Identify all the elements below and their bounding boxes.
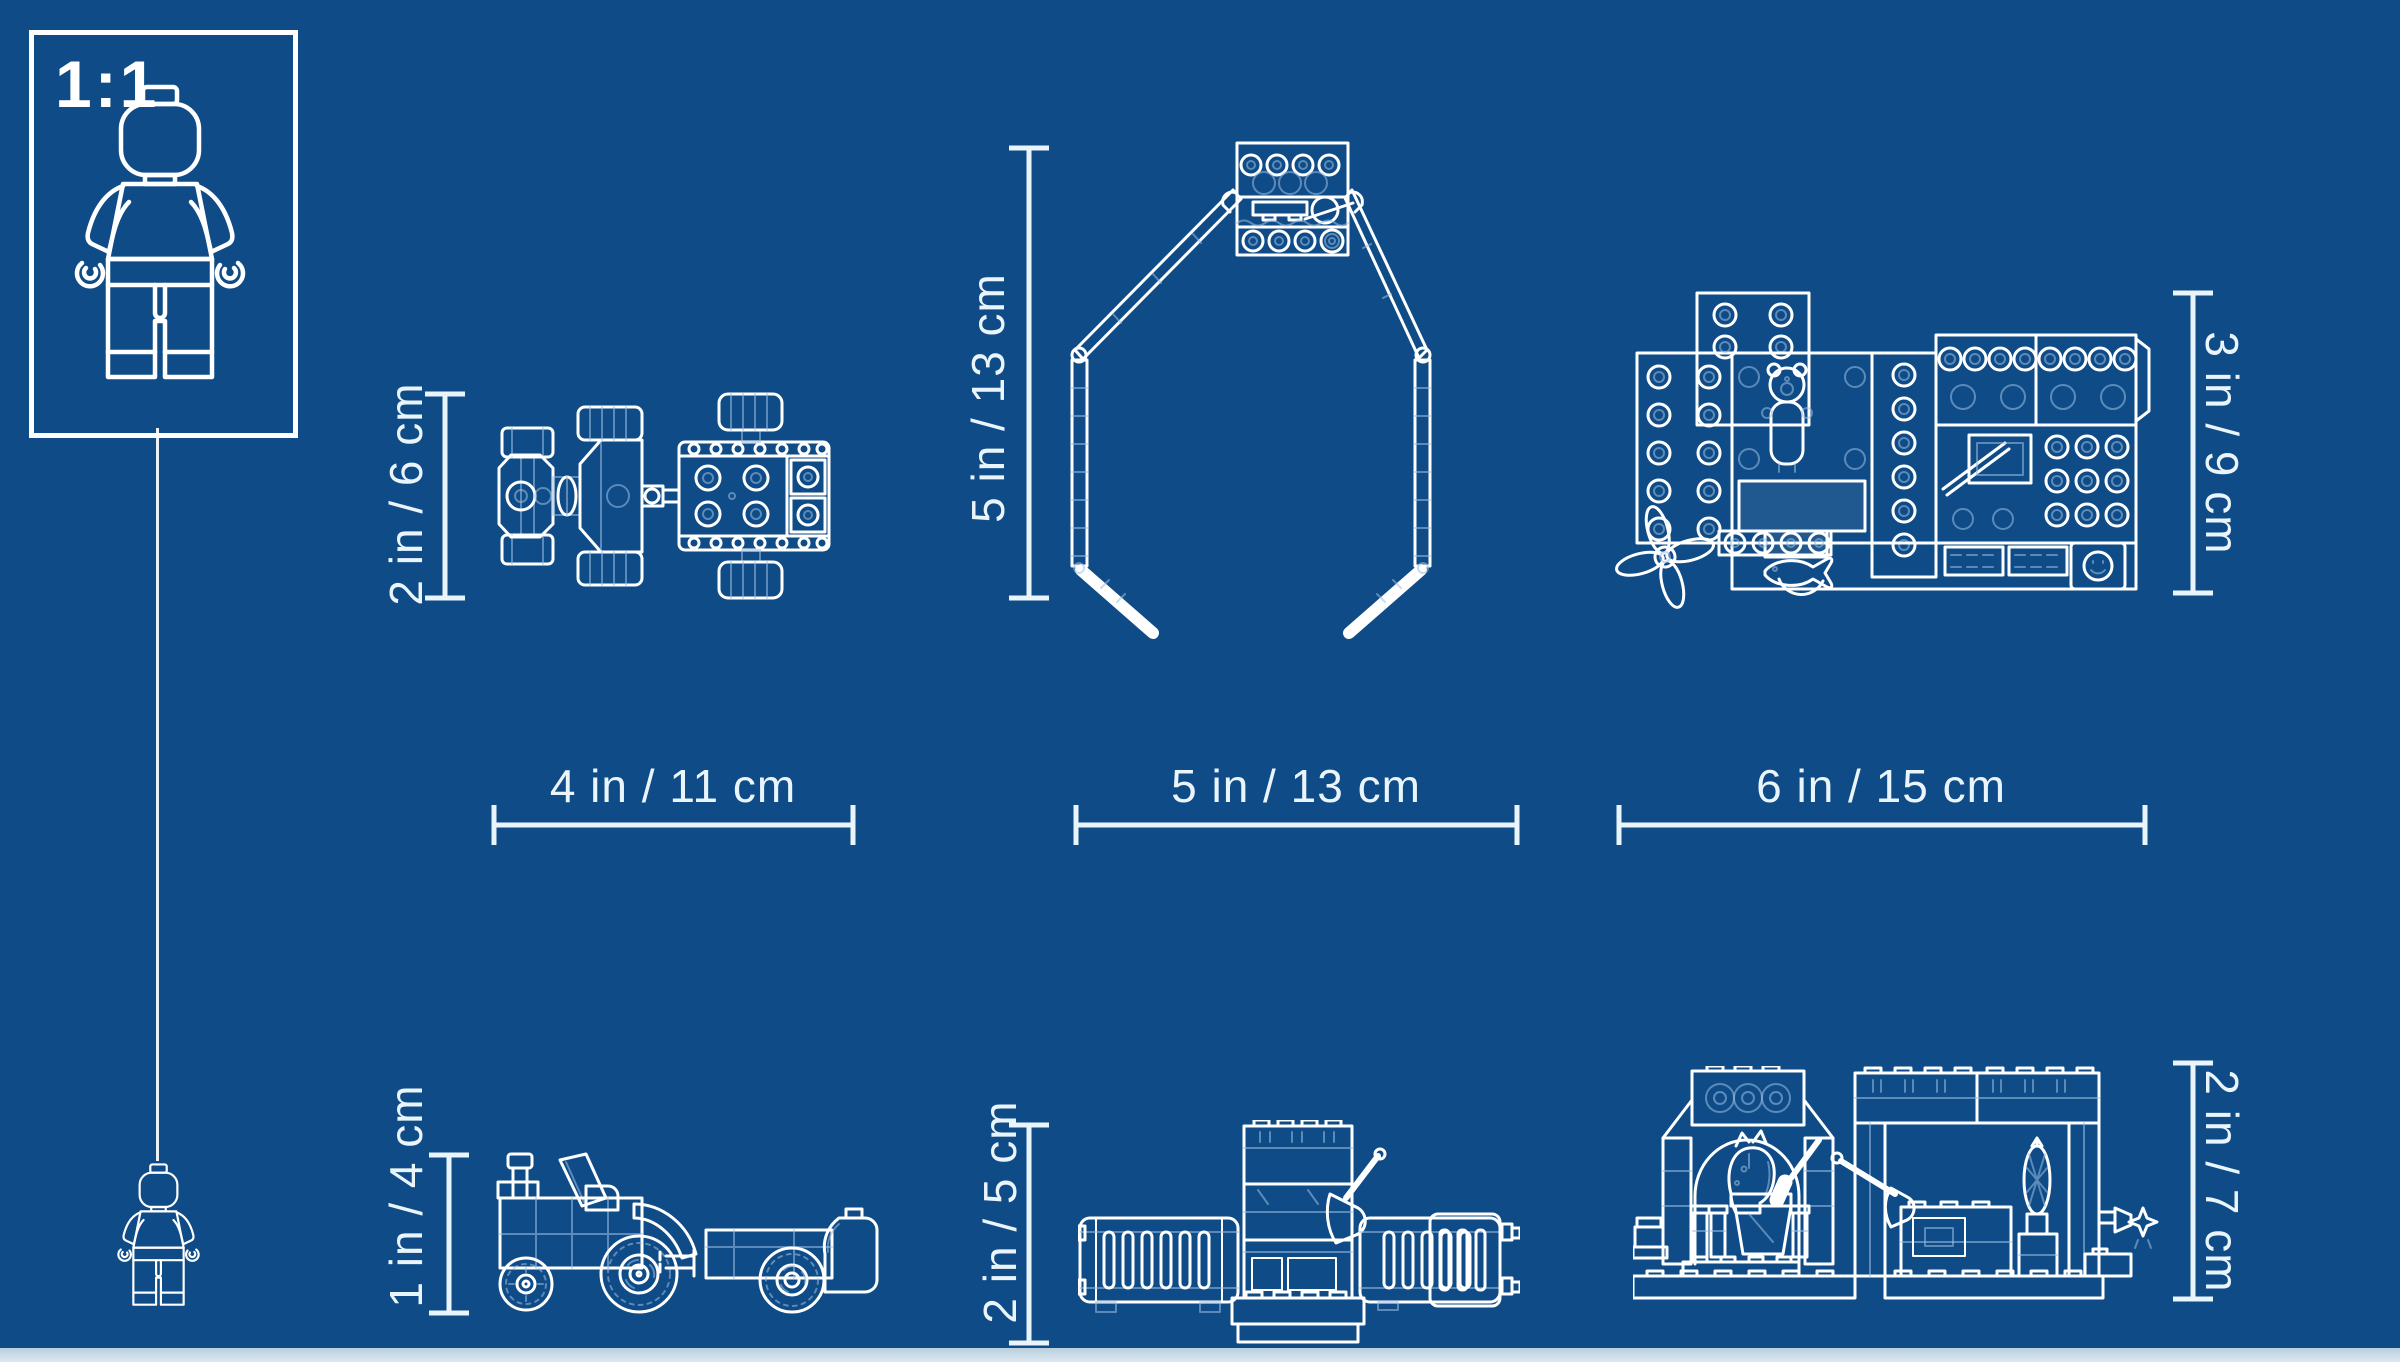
feed-box-brick bbox=[1901, 1202, 2011, 1276]
plate-top-right-bricks bbox=[1936, 335, 2149, 425]
dimension-label-stable-height: 2 in / 7 cm bbox=[2195, 1069, 2249, 1292]
left-fence-panel bbox=[1078, 1218, 1238, 1312]
right-fence-panel bbox=[1360, 1214, 1520, 1310]
plate-mid-right bbox=[1936, 425, 2136, 543]
tractor-body-side bbox=[498, 1154, 696, 1268]
tractor-hood bbox=[499, 455, 580, 537]
stable-sign bbox=[1692, 1066, 1804, 1125]
propeller-element bbox=[1613, 494, 1727, 614]
footer-strip bbox=[0, 1348, 2400, 1362]
horse-figure bbox=[1729, 1131, 1774, 1213]
water-tap bbox=[2099, 1208, 2157, 1248]
bear-figure bbox=[1762, 364, 1812, 472]
minifigure-large-outline bbox=[60, 84, 260, 390]
minifigure-small-outline bbox=[110, 1163, 207, 1311]
tractor-rear-wheel bbox=[601, 1236, 677, 1312]
dimension-label-baseplate-height: 3 in / 9 cm bbox=[2195, 331, 2249, 554]
plate-left-column bbox=[1637, 353, 1732, 543]
trailer-side bbox=[706, 1209, 877, 1312]
dimension-label-tractor-side-height: 1 in / 4 cm bbox=[379, 1084, 433, 1307]
frame-feet bbox=[1074, 563, 1428, 633]
open-frame-structure bbox=[1855, 1068, 2099, 1276]
hatched-panels bbox=[1945, 547, 2067, 575]
trailer-bed bbox=[679, 442, 829, 550]
octagon-frame-drawing bbox=[1055, 138, 1447, 653]
corn-stand bbox=[2019, 1138, 2057, 1276]
dimension-label-octagon-height: 5 in / 13 cm bbox=[961, 273, 1015, 523]
frame-side-bars bbox=[1072, 360, 1430, 566]
dimension-label-tractor-top-height: 2 in / 6 cm bbox=[379, 382, 433, 605]
tractor-cab bbox=[578, 407, 642, 585]
stable-scene-drawing bbox=[1633, 1066, 2163, 1306]
tractor-front-wheel bbox=[500, 1258, 552, 1310]
plate-bottom-band bbox=[1719, 531, 2136, 589]
farm-baseplate-top-view-drawing bbox=[1613, 289, 2158, 614]
shovel-tool bbox=[1327, 1149, 1385, 1243]
tractor-trailer-side-view-drawing bbox=[494, 1152, 886, 1324]
scale-connector-line bbox=[156, 428, 159, 1161]
dimension-label-tractor-top-width: 4 in / 11 cm bbox=[550, 759, 796, 813]
dimension-line-tractor-side-height bbox=[427, 1151, 471, 1317]
dimension-label-baseplate-width: 6 in / 15 cm bbox=[1756, 759, 2006, 813]
trailer-hitch bbox=[642, 486, 679, 506]
minifig-head-tile-icon bbox=[2071, 543, 2125, 589]
frame-arms bbox=[1072, 190, 1430, 362]
fence-panels-drawing bbox=[1078, 1120, 1520, 1348]
tractor-trailer-top-view-drawing bbox=[490, 392, 856, 601]
blueprint-canvas: 1:1 bbox=[0, 0, 2400, 1362]
center-stand-tower bbox=[1232, 1120, 1364, 1342]
frame-top-brick bbox=[1223, 143, 1363, 255]
dimension-label-octagon-width: 5 in / 13 cm bbox=[1171, 759, 1421, 813]
dimension-label-fence-height: 2 in / 5 cm bbox=[973, 1100, 1027, 1323]
